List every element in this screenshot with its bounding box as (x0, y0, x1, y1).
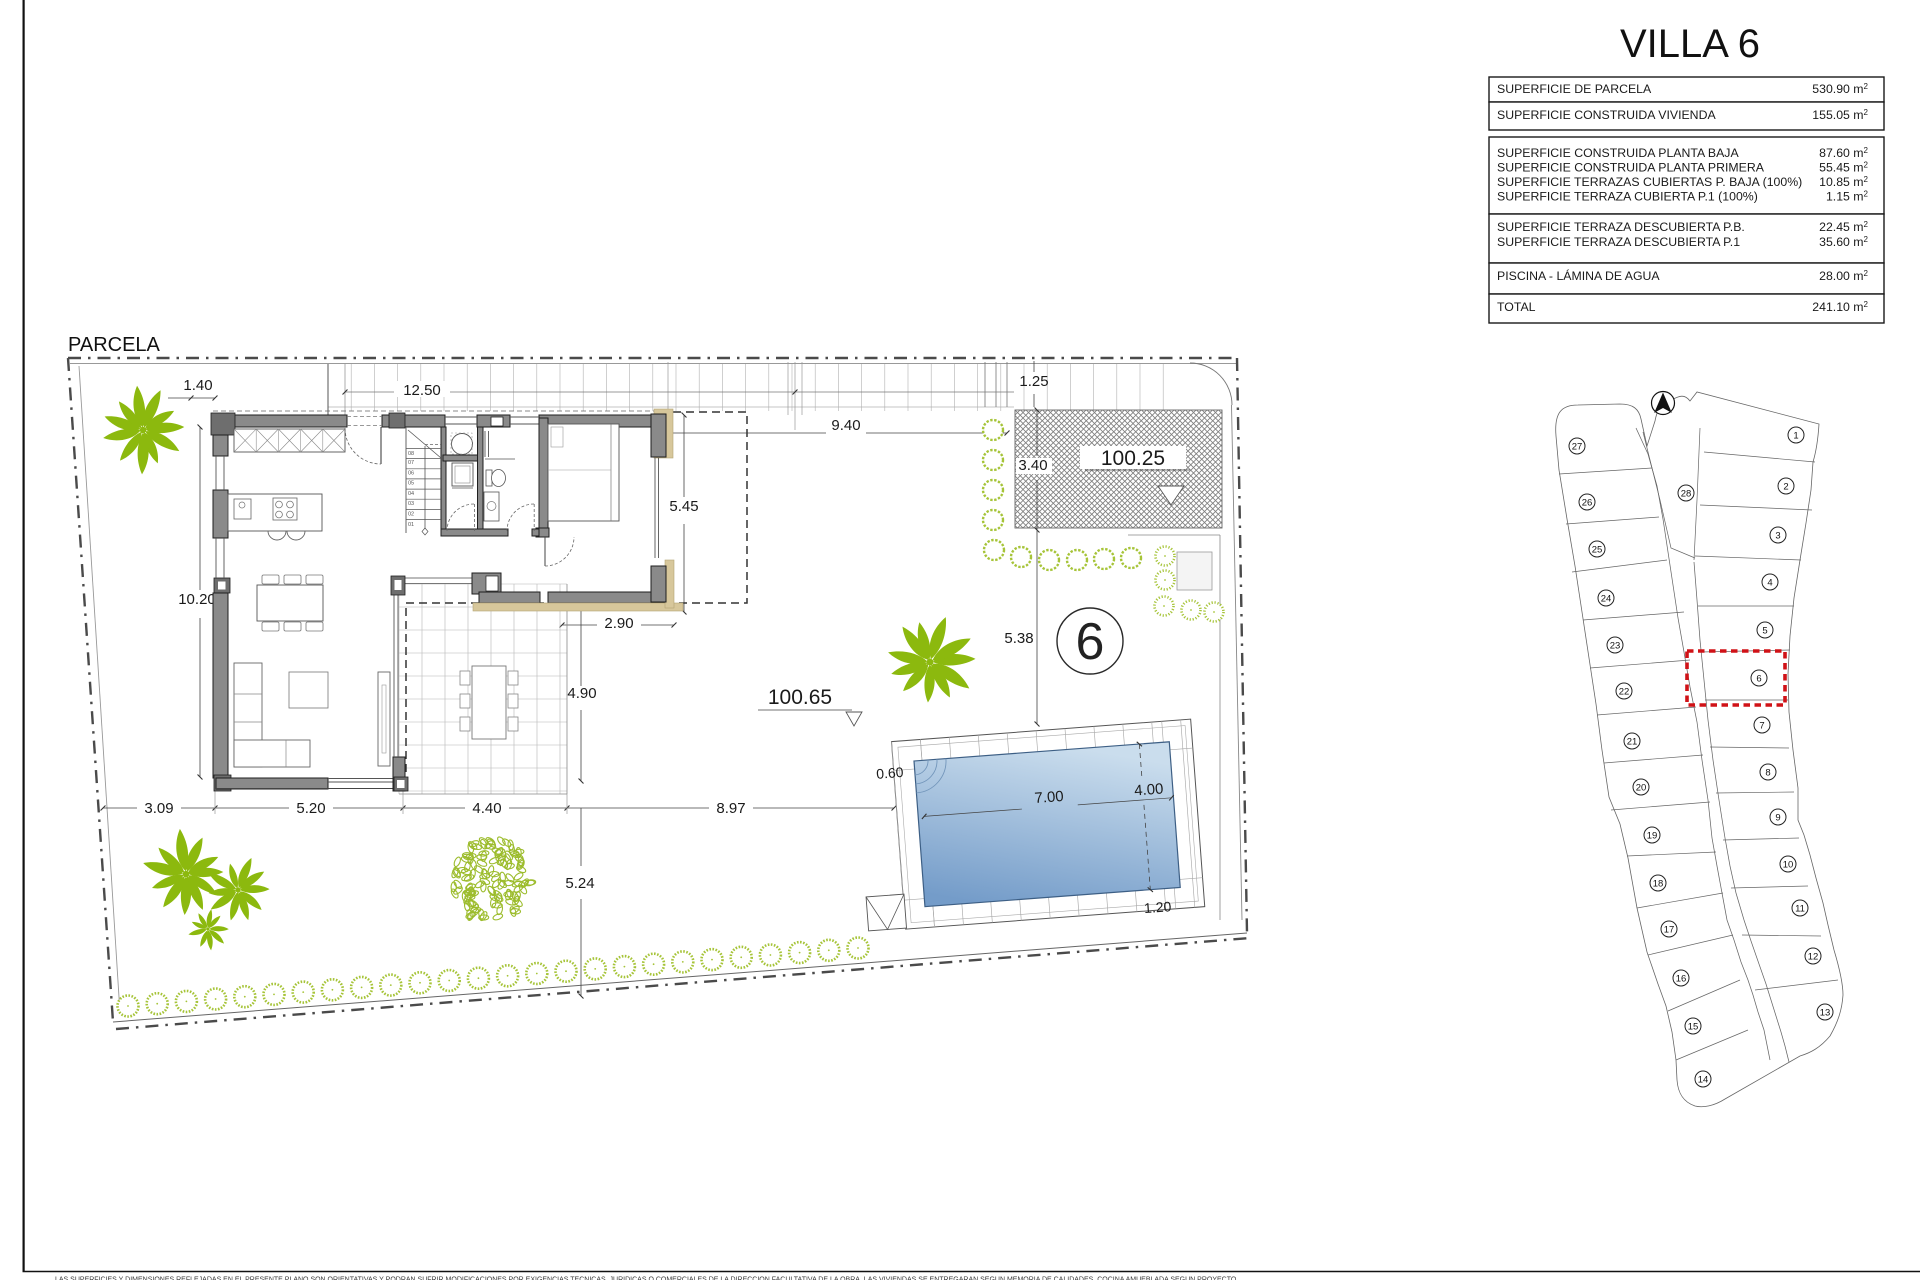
svg-text:02: 02 (408, 512, 414, 518)
svg-text:SUPERFICIE TERRAZA DESCUBIERTA: SUPERFICIE TERRAZA DESCUBIERTA P.B. (1497, 220, 1745, 234)
svg-text:9.40: 9.40 (831, 417, 860, 434)
svg-text:28.00 m2: 28.00 m2 (1819, 269, 1868, 283)
svg-text:06: 06 (408, 471, 414, 477)
svg-text:241.10 m2: 241.10 m2 (1812, 300, 1868, 314)
svg-text:6: 6 (1756, 673, 1761, 684)
svg-text:SUPERFICIE CONSTRUIDA PLANTA P: SUPERFICIE CONSTRUIDA PLANTA PRIMERA (1497, 161, 1765, 175)
svg-text:12: 12 (1808, 951, 1819, 962)
svg-text:LAS SUPERFICIES Y DIMENSIONES: LAS SUPERFICIES Y DIMENSIONES REFLEJADAS… (55, 1277, 1238, 1280)
svg-text:03: 03 (408, 501, 414, 507)
svg-text:1.25: 1.25 (1019, 373, 1048, 390)
svg-text:07: 07 (408, 460, 414, 466)
svg-text:14: 14 (1698, 1074, 1709, 1085)
svg-text:10: 10 (1783, 859, 1794, 870)
svg-text:12.50: 12.50 (403, 382, 441, 399)
svg-text:2.90: 2.90 (604, 615, 633, 632)
svg-text:530.90 m2: 530.90 m2 (1812, 82, 1868, 96)
svg-text:1.20: 1.20 (1143, 898, 1172, 916)
svg-text:17: 17 (1664, 924, 1675, 935)
svg-text:3.40: 3.40 (1018, 457, 1047, 474)
svg-text:16: 16 (1676, 973, 1687, 984)
svg-text:87.60 m2: 87.60 m2 (1819, 146, 1868, 160)
svg-text:PISCINA - LÁMINA DE AGUA: PISCINA - LÁMINA DE AGUA (1497, 268, 1660, 283)
svg-text:11: 11 (1795, 903, 1805, 914)
svg-text:22.45 m2: 22.45 m2 (1819, 220, 1868, 234)
svg-text:SUPERFICIE TERRAZA CUBIERTA P.: SUPERFICIE TERRAZA CUBIERTA P.1 (100%) (1497, 190, 1758, 204)
svg-text:35.60 m2: 35.60 m2 (1819, 235, 1868, 249)
svg-text:8: 8 (1765, 767, 1770, 778)
svg-text:VILLA 6: VILLA 6 (1620, 22, 1760, 66)
svg-text:22: 22 (1619, 686, 1630, 697)
svg-text:100.25: 100.25 (1101, 447, 1165, 470)
svg-text:18: 18 (1653, 878, 1664, 889)
svg-text:08: 08 (408, 451, 414, 457)
svg-text:1: 1 (1793, 430, 1798, 441)
svg-text:2: 2 (1783, 481, 1788, 492)
svg-text:10.20: 10.20 (178, 591, 216, 608)
svg-text:5: 5 (1762, 625, 1767, 636)
svg-text:5.38: 5.38 (1004, 630, 1033, 647)
svg-text:4.40: 4.40 (472, 800, 501, 817)
svg-text:05: 05 (408, 481, 414, 487)
svg-text:10.85 m2: 10.85 m2 (1819, 175, 1868, 189)
svg-text:155.05 m2: 155.05 m2 (1812, 108, 1868, 122)
svg-text:21: 21 (1627, 736, 1638, 747)
svg-text:04: 04 (408, 491, 414, 497)
svg-text:5.24: 5.24 (565, 875, 594, 892)
svg-text:4.00: 4.00 (1134, 780, 1164, 799)
svg-text:28: 28 (1681, 488, 1692, 499)
svg-text:4: 4 (1767, 577, 1772, 588)
svg-text:SUPERFICIE TERRAZAS CUBIERTAS: SUPERFICIE TERRAZAS CUBIERTAS P. BAJA (1… (1497, 175, 1802, 189)
svg-text:15: 15 (1688, 1021, 1699, 1032)
svg-text:19: 19 (1647, 830, 1658, 841)
svg-text:9: 9 (1775, 812, 1780, 823)
svg-text:8.97: 8.97 (716, 800, 745, 817)
svg-text:13: 13 (1820, 1007, 1831, 1018)
svg-text:26: 26 (1582, 497, 1593, 508)
svg-text:6: 6 (1076, 613, 1105, 671)
svg-text:SUPERFICIE DE PARCELA: SUPERFICIE DE PARCELA (1497, 82, 1652, 96)
svg-text:25: 25 (1592, 544, 1603, 555)
svg-text:100.65: 100.65 (768, 686, 832, 709)
svg-text:0.60: 0.60 (876, 764, 905, 782)
svg-text:SUPERFICIE TERRAZA DESCUBIERTA: SUPERFICIE TERRAZA DESCUBIERTA P.1 (1497, 235, 1740, 249)
svg-text:3.09: 3.09 (144, 800, 173, 817)
svg-text:24: 24 (1601, 593, 1612, 604)
svg-text:1.40: 1.40 (183, 377, 212, 394)
svg-text:PARCELA: PARCELA (68, 334, 161, 356)
svg-text:4.90: 4.90 (567, 685, 596, 702)
svg-text:TOTAL: TOTAL (1497, 300, 1536, 314)
svg-text:23: 23 (1610, 640, 1621, 651)
svg-text:7: 7 (1759, 720, 1764, 731)
svg-text:1.15 m2: 1.15 m2 (1826, 190, 1869, 204)
svg-text:SUPERFICIE CONSTRUIDA VIVIENDA: SUPERFICIE CONSTRUIDA VIVIENDA (1497, 108, 1716, 122)
svg-text:SUPERFICIE CONSTRUIDA PLANTA B: SUPERFICIE CONSTRUIDA PLANTA BAJA (1497, 146, 1739, 160)
svg-text:5.20: 5.20 (296, 800, 325, 817)
svg-text:7.00: 7.00 (1034, 788, 1064, 807)
svg-text:01: 01 (408, 522, 414, 528)
svg-text:3: 3 (1775, 530, 1780, 541)
svg-text:55.45 m2: 55.45 m2 (1819, 161, 1868, 175)
svg-text:27: 27 (1572, 441, 1583, 452)
svg-text:20: 20 (1636, 782, 1647, 793)
svg-text:5.45: 5.45 (669, 498, 698, 515)
